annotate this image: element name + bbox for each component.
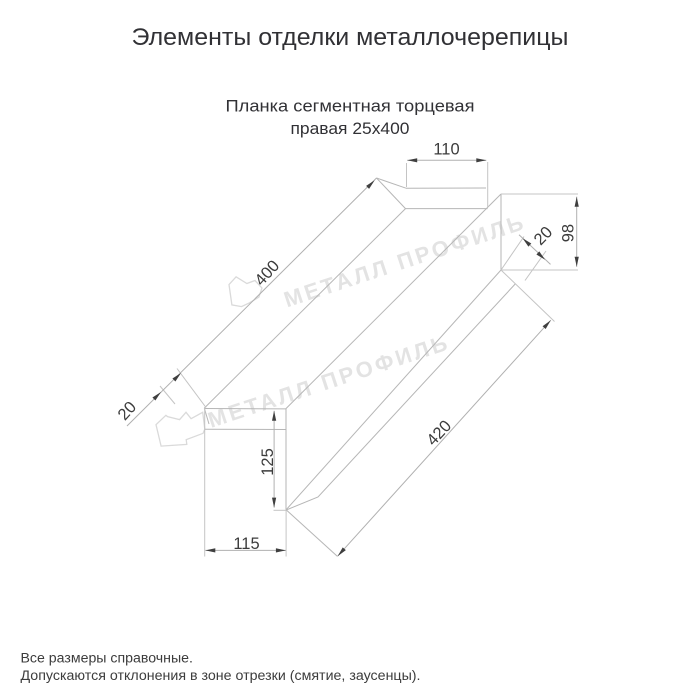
svg-text:Все размеры справочные.: Все размеры справочные. (21, 651, 193, 666)
svg-text:Планка сегментная торцевая: Планка сегментная торцевая (226, 97, 475, 116)
svg-text:115: 115 (233, 535, 259, 553)
svg-text:Допускаются отклонения в зоне: Допускаются отклонения в зоне отрезки (с… (21, 668, 421, 683)
svg-text:98: 98 (559, 224, 577, 242)
svg-text:110: 110 (433, 141, 459, 159)
svg-text:125: 125 (259, 448, 277, 476)
svg-text:Элементы отделки металлочерепи: Элементы отделки металлочерепицы (132, 24, 569, 51)
svg-text:правая 25x400: правая 25x400 (291, 119, 410, 138)
